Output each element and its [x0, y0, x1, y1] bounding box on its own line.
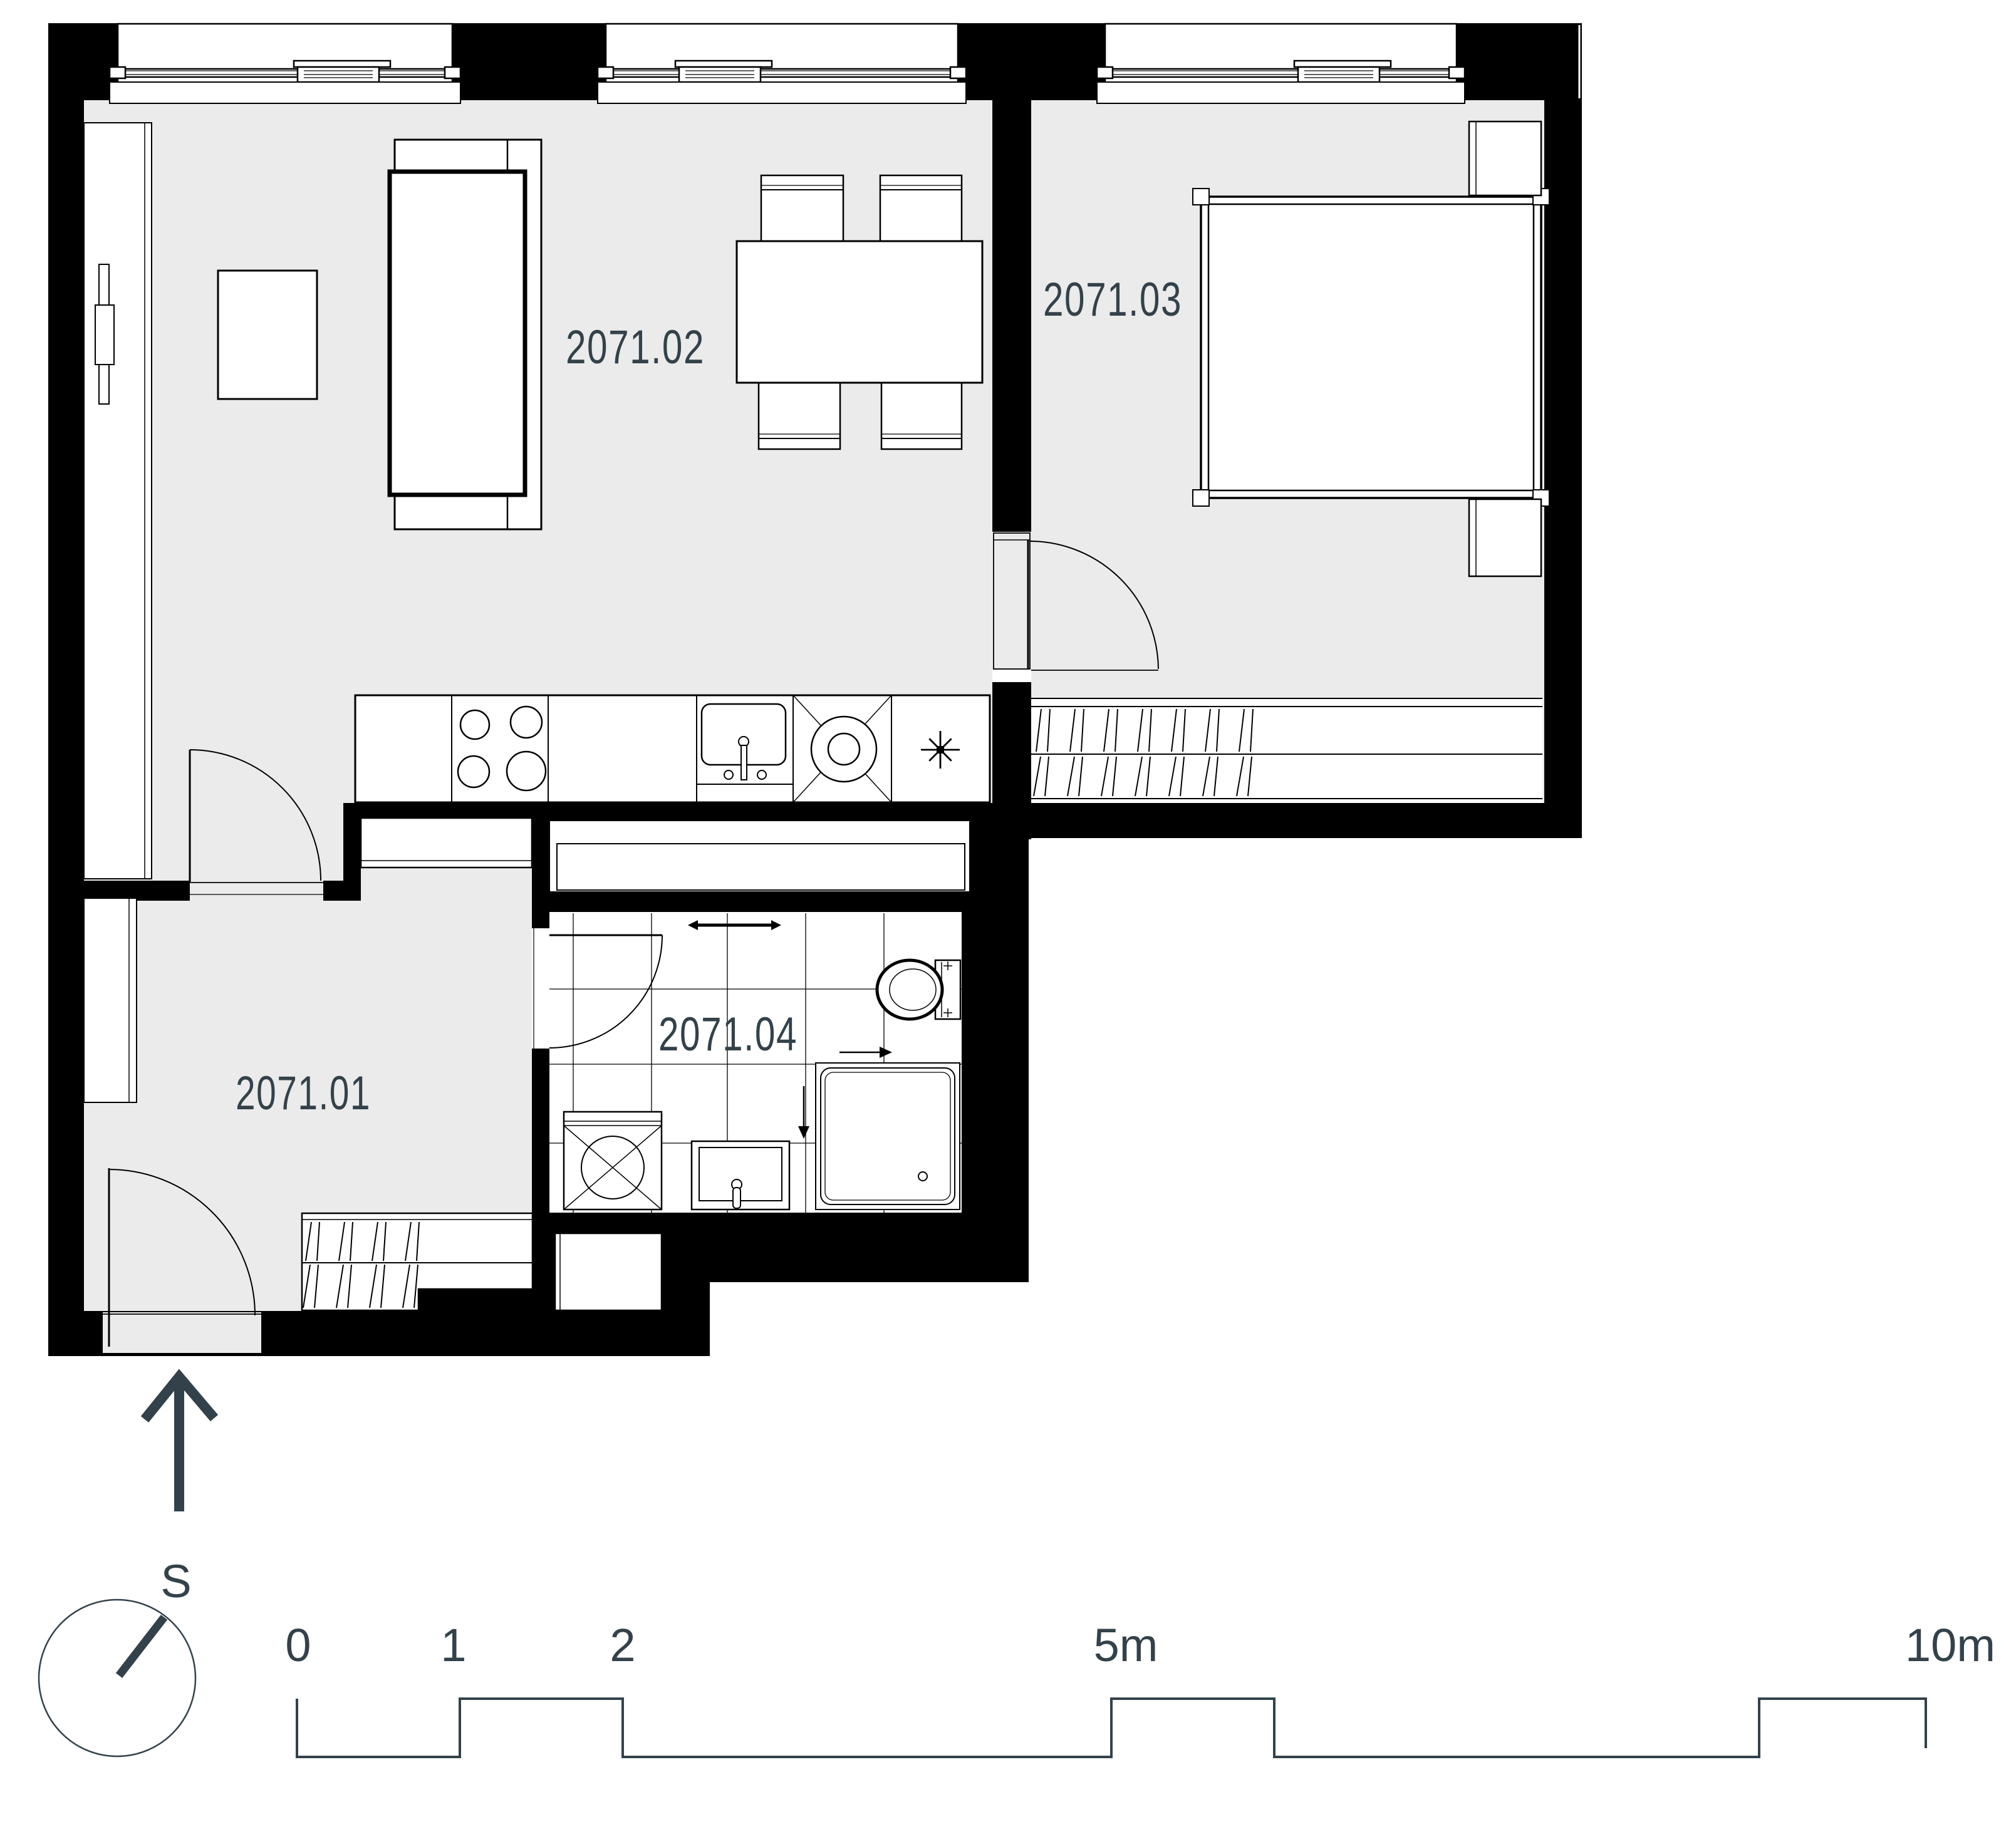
svg-text:10m: 10m [1905, 1619, 1995, 1671]
svg-text:S: S [160, 1555, 191, 1607]
svg-text:2071.04: 2071.04 [658, 1008, 798, 1061]
svg-text:2071.03: 2071.03 [1043, 273, 1182, 326]
svg-text:5m: 5m [1094, 1619, 1158, 1671]
svg-text:2: 2 [610, 1619, 635, 1671]
svg-text:2071.02: 2071.02 [566, 321, 705, 374]
svg-text:2071.01: 2071.01 [236, 1067, 371, 1120]
svg-text:1: 1 [440, 1619, 466, 1671]
svg-text:0: 0 [285, 1619, 311, 1671]
